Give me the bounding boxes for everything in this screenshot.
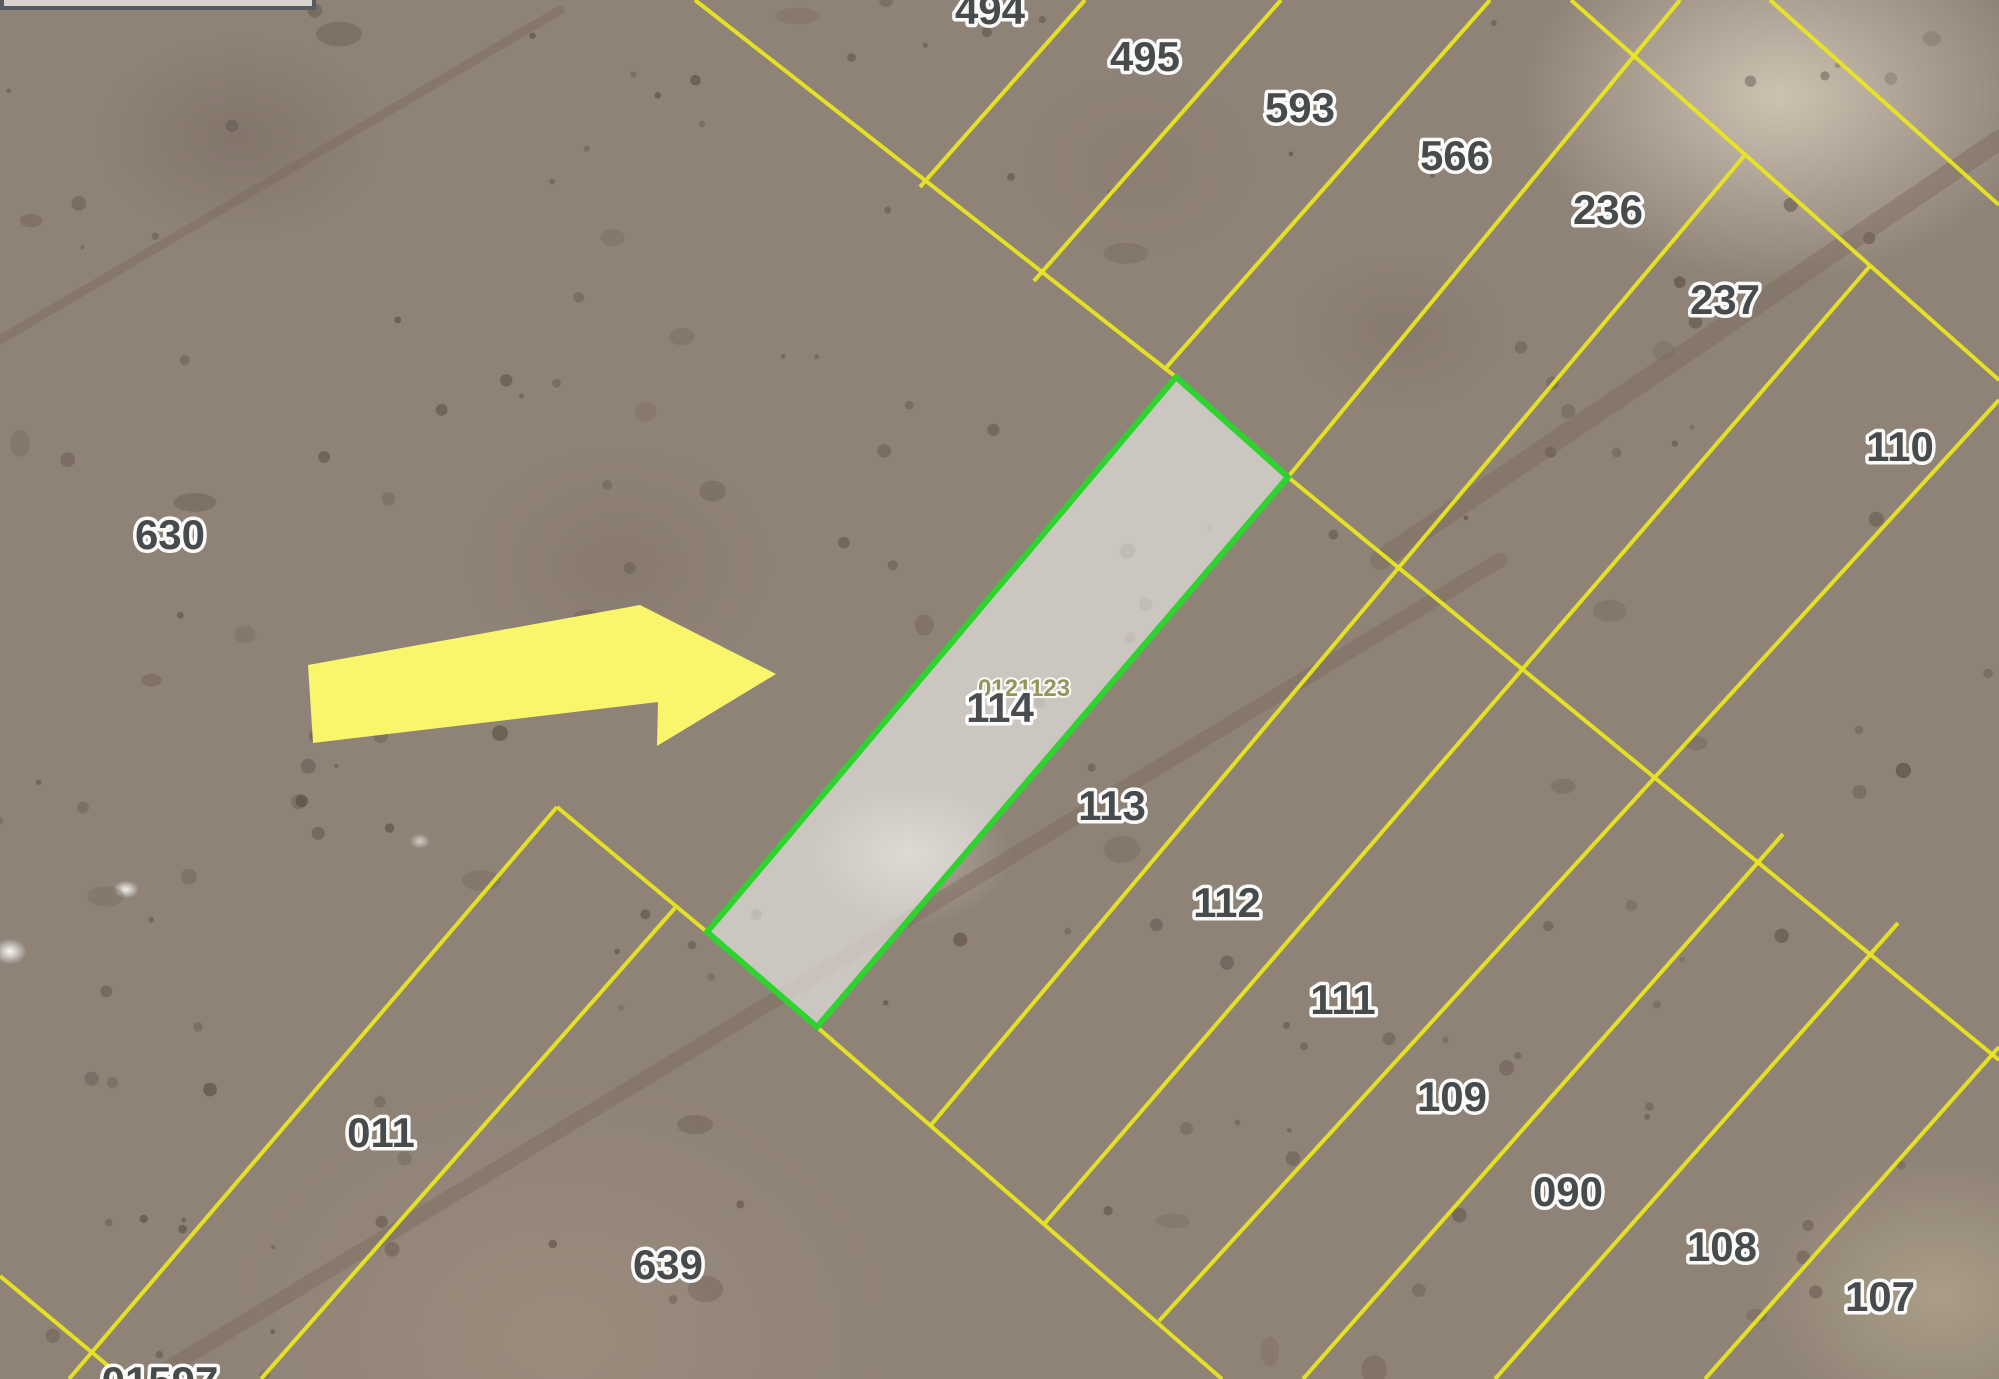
vegetation-speckle <box>193 1022 203 1032</box>
vegetation-speckle <box>655 92 662 99</box>
vegetation-speckle <box>492 725 508 741</box>
vegetation-speckle <box>312 827 325 840</box>
terrain-patch <box>669 328 694 345</box>
vegetation-speckle <box>847 53 856 62</box>
terrain-patch <box>1593 600 1626 622</box>
vegetation-speckle <box>1561 404 1575 418</box>
vegetation-speckle <box>1515 341 1528 354</box>
terrain-patch <box>87 886 125 906</box>
vegetation-speckle <box>36 780 41 785</box>
terrain-patch <box>1261 1337 1279 1367</box>
parcel-boundary-line <box>1164 0 1490 370</box>
vegetation-speckle <box>814 354 819 359</box>
parcel-boundary-line <box>1705 1047 1999 1379</box>
vegetation-speckle <box>552 379 561 388</box>
vegetation-speckle <box>1644 1114 1650 1120</box>
vegetation-speckle <box>1896 763 1911 778</box>
vegetation-speckle <box>385 823 394 832</box>
vegetation-speckle <box>603 480 613 490</box>
vegetation-speckle <box>291 794 306 809</box>
vegetation-speckle <box>226 120 239 133</box>
vegetation-speckle <box>1412 1283 1426 1297</box>
vegetation-speckle <box>0 818 4 825</box>
vegetation-speckle <box>736 1201 744 1209</box>
vegetation-speckle <box>549 179 555 185</box>
vegetation-speckle <box>84 1072 98 1086</box>
vegetation-speckle <box>614 949 620 955</box>
terrain-patch <box>174 493 217 512</box>
terrain-patch <box>699 481 726 502</box>
vegetation-speckle <box>1289 152 1294 157</box>
pointer-arrow <box>308 605 776 746</box>
vegetation-speckle <box>107 1077 118 1088</box>
vegetation-speckle <box>1180 1122 1193 1135</box>
vegetation-speckle <box>318 451 330 463</box>
vegetation-speckle <box>1235 1120 1241 1126</box>
map-viewport: 4944955935662362371106301131121111090901… <box>0 0 1999 1379</box>
vegetation-speckle <box>100 985 112 997</box>
vegetation-speckle <box>1679 957 1685 963</box>
vegetation-speckle <box>699 121 706 128</box>
vegetation-speckle <box>1672 440 1678 446</box>
vegetation-speckle <box>374 1096 386 1108</box>
vegetation-speckle <box>148 917 154 923</box>
vegetation-speckle <box>877 444 891 458</box>
vegetation-speckle <box>301 759 316 774</box>
vegetation-speckle <box>80 245 84 249</box>
vegetation-speckle <box>624 562 636 574</box>
vegetation-speckle <box>883 1000 888 1005</box>
vegetation-speckle <box>1064 928 1071 935</box>
vegetation-speckle <box>1383 1032 1396 1045</box>
vegetation-speckle <box>1745 76 1756 87</box>
vegetation-speckle <box>1329 530 1339 540</box>
vegetation-speckle <box>1220 956 1234 970</box>
vegetation-speckle <box>382 492 396 506</box>
vegetation-speckle <box>1653 1001 1661 1009</box>
terrain-patch <box>635 402 657 422</box>
vegetation-speckle <box>584 145 590 151</box>
vegetation-speckle <box>630 71 636 77</box>
vegetation-speckle <box>688 941 696 949</box>
vegetation-speckle <box>1803 1220 1814 1231</box>
vegetation-speckle <box>1869 512 1884 527</box>
parcel-boundary-line <box>1303 834 1783 1379</box>
parcel-boundary-line <box>557 807 707 932</box>
parcel-number-label: 110 <box>1866 423 1934 470</box>
vegetation-speckle <box>707 973 715 981</box>
parcel-boundary-line <box>695 0 1176 377</box>
parcel-number-label: 108 <box>1687 1223 1757 1270</box>
parcel-boundary-line <box>1288 477 1999 1060</box>
map-canvas[interactable]: 4944955935662362371106301131121111090901… <box>0 0 1999 1379</box>
vegetation-speckle <box>203 1083 217 1097</box>
vegetation-speckle <box>394 317 401 324</box>
vegetation-speckle <box>46 1329 60 1343</box>
vegetation-speckle <box>640 909 650 919</box>
vegetation-speckle <box>181 1218 186 1223</box>
cropped-panel[interactable] <box>0 0 316 10</box>
vegetation-speckle <box>6 88 11 93</box>
vegetation-speckle <box>549 1240 558 1249</box>
vegetation-speckle <box>905 401 914 410</box>
vegetation-speckle <box>1088 764 1096 772</box>
vegetation-speckle <box>1543 921 1553 931</box>
parcel-number-label: 630 <box>135 511 205 558</box>
vegetation-speckle <box>1103 1206 1112 1215</box>
vegetation-speckle <box>1612 448 1621 457</box>
vegetation-speckle <box>1855 726 1864 735</box>
vegetation-speckle <box>180 355 190 365</box>
terrain-patch <box>775 8 821 25</box>
vegetation-speckle <box>500 374 512 386</box>
vegetation-speckle <box>1039 16 1046 23</box>
parcel-boundary-line <box>69 807 557 1379</box>
vegetation-speckle <box>953 933 967 947</box>
vegetation-speckle <box>1283 1022 1290 1029</box>
parcel-number-label: 639 <box>633 1241 703 1288</box>
parcel-number-label: 109 <box>1417 1073 1487 1120</box>
parcel-number-label: 237 <box>1690 276 1760 323</box>
vegetation-speckle <box>1491 20 1497 26</box>
parcel-number-label: 494 <box>955 0 1026 33</box>
vegetation-speckle <box>152 233 159 240</box>
terrain-patch <box>1156 1214 1190 1229</box>
vegetation-speckle <box>669 1295 678 1304</box>
vegetation-speckle <box>1499 1060 1514 1075</box>
vegetation-speckle <box>1287 1128 1292 1133</box>
vegetation-speckle <box>1300 1042 1308 1050</box>
vegetation-speckle <box>1464 516 1469 521</box>
vegetation-speckle <box>140 1215 148 1223</box>
vegetation-speckle <box>385 1242 400 1257</box>
vegetation-speckle <box>888 560 898 570</box>
parcel-number-label: 111 <box>1310 976 1375 1023</box>
terrain-patch <box>141 674 162 687</box>
vegetation-speckle <box>1514 1052 1521 1059</box>
terrain-patch <box>600 229 624 246</box>
vegetation-speckle <box>1853 785 1867 799</box>
vegetation-speckle <box>618 1005 624 1011</box>
terrain-patch <box>1923 31 1942 46</box>
dirt-track <box>1380 140 1999 560</box>
parcel-boundary-line <box>817 1027 1222 1379</box>
terrain-patch <box>1103 243 1148 264</box>
parcel-number-label: 113 <box>1078 782 1146 829</box>
parcel-number-label: 011 <box>347 1109 415 1156</box>
vegetation-speckle <box>1885 72 1898 85</box>
vegetation-speckle <box>181 869 197 885</box>
terrain-patch <box>677 1115 713 1134</box>
vegetation-speckle <box>1774 929 1788 943</box>
vegetation-speckle <box>1442 1037 1449 1044</box>
vegetation-speckle <box>1645 1102 1654 1111</box>
vegetation-speckle <box>529 32 535 38</box>
vegetation-speckle <box>1820 71 1829 80</box>
parcel-number-label: 01597 <box>102 1358 219 1379</box>
vegetation-speckle <box>60 452 75 467</box>
vegetation-speckle <box>1674 276 1686 288</box>
terrain-patch <box>1551 779 1575 794</box>
vegetation-speckle <box>1809 1285 1822 1298</box>
vegetation-speckle <box>923 43 928 48</box>
selected-parcel-number: 114 <box>966 684 1034 731</box>
vegetation-speckle <box>987 424 999 436</box>
vegetation-speckle <box>105 1219 113 1227</box>
vegetation-speckle <box>884 207 891 214</box>
parcel-boundary-line <box>1495 923 1898 1379</box>
parcel-number-label: 090 <box>1533 1168 1603 1215</box>
vegetation-speckle <box>519 394 524 399</box>
terrain-patch <box>1361 1355 1387 1379</box>
vegetation-speckle <box>178 1225 187 1234</box>
parcel-number-label: 236 <box>1573 186 1643 233</box>
vegetation-speckle <box>177 612 184 619</box>
parcel-number-label: 107 <box>1845 1273 1915 1320</box>
vegetation-speckle <box>781 354 786 359</box>
parcel-number-label: 112 <box>1193 879 1261 926</box>
parcel-number-label: 593 <box>1265 84 1335 131</box>
parcel-number-label: 495 <box>1110 33 1180 80</box>
vegetation-speckle <box>1286 1151 1301 1166</box>
terrain-patch <box>11 430 30 457</box>
vegetation-speckle <box>879 0 893 7</box>
vegetation-speckle <box>270 1329 275 1334</box>
terrain-patch <box>235 626 257 643</box>
vegetation-speckle <box>1007 173 1015 181</box>
vegetation-speckle <box>72 196 87 211</box>
vegetation-speckle <box>1150 918 1163 931</box>
terrain-patch <box>316 22 362 47</box>
vegetation-speckle <box>334 764 338 768</box>
vegetation-speckle <box>436 404 448 416</box>
vegetation-speckle <box>573 292 584 303</box>
vegetation-speckle <box>77 802 89 814</box>
parcel-boundary-line <box>261 908 675 1379</box>
dirt-track <box>0 10 560 340</box>
vegetation-speckle <box>838 537 850 549</box>
vegetation-speckle <box>271 1245 275 1249</box>
vegetation-speckle <box>690 75 701 86</box>
terrain-patch <box>1104 836 1141 863</box>
vegetation-speckle <box>1983 669 1993 679</box>
terrain-patch <box>915 615 934 636</box>
parcel-boundary-line <box>1770 0 1999 205</box>
terrain-patch <box>20 214 42 228</box>
vegetation-speckle <box>1690 425 1695 430</box>
vegetation-speckle <box>1626 900 1638 912</box>
vegetation-speckle <box>376 1216 388 1228</box>
parcel-number-label: 566 <box>1420 132 1490 179</box>
